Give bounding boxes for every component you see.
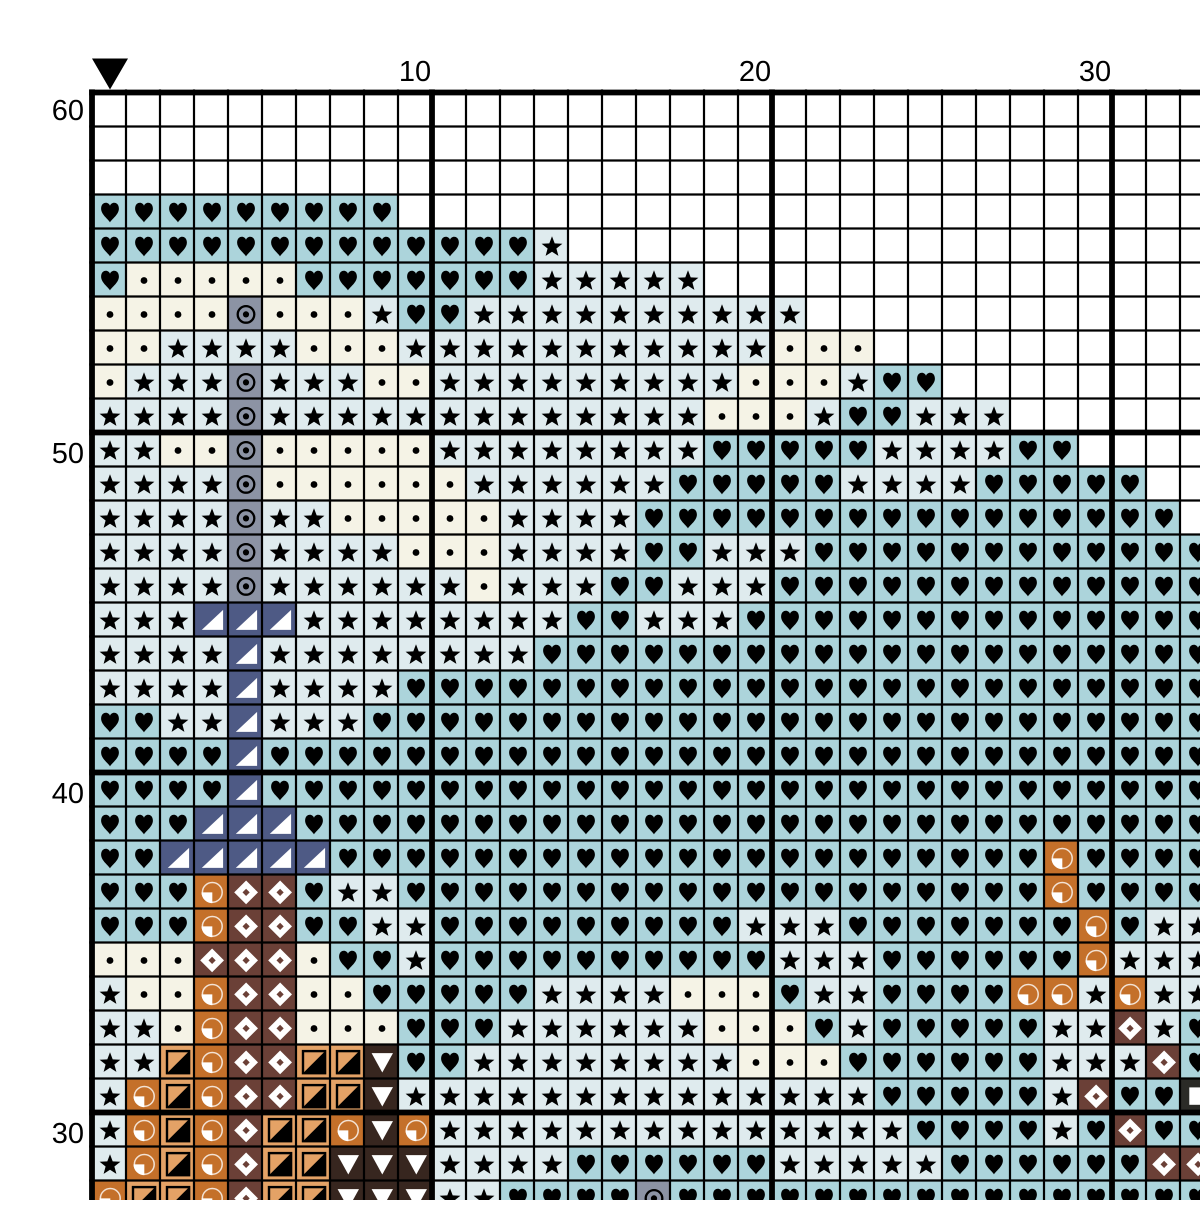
svg-text:60: 60	[52, 95, 84, 127]
svg-text:10: 10	[399, 56, 431, 88]
svg-text:30: 30	[52, 1118, 84, 1150]
svg-text:20: 20	[739, 56, 771, 88]
svg-text:40: 40	[52, 778, 84, 810]
svg-text:30: 30	[1079, 56, 1111, 88]
svg-text:50: 50	[52, 438, 84, 470]
